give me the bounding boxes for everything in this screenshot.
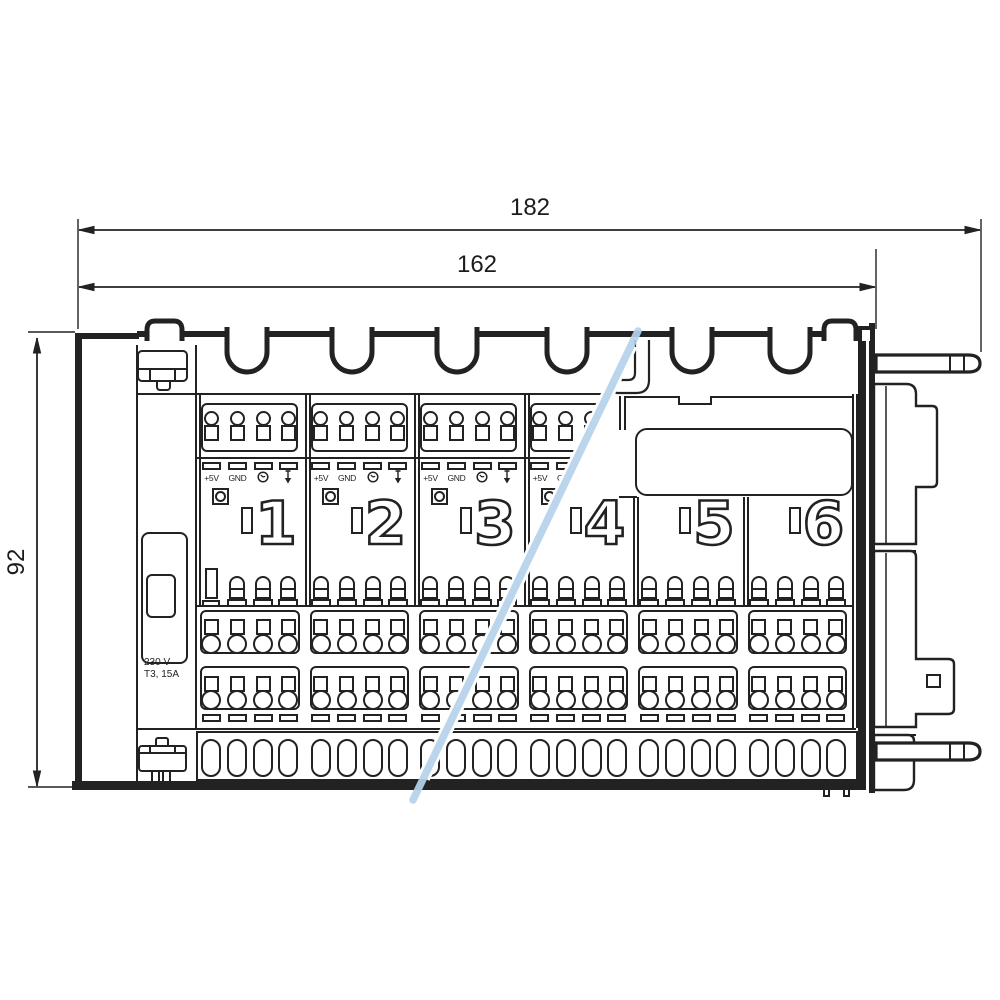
- pin-line: [231, 588, 243, 590]
- clock-icon: [367, 471, 379, 483]
- vent-slot: [421, 462, 440, 470]
- pin-line: [586, 588, 598, 590]
- terminal-clamp: [313, 425, 328, 441]
- drive-pin: [339, 576, 355, 599]
- screw-terminal-circle: [607, 690, 627, 710]
- pin-line: [424, 588, 436, 590]
- pin-line: [611, 588, 623, 590]
- screw-terminal-square: [204, 619, 219, 635]
- pin-base: [497, 599, 517, 607]
- drive-pin: [255, 576, 271, 599]
- module-top-detail: +5VGND: [195, 394, 305, 497]
- pin-line: [534, 588, 546, 590]
- cable-entry: [472, 739, 492, 777]
- screw-terminal-square: [609, 619, 624, 635]
- terminal-screw: [475, 411, 490, 426]
- screw-terminal-square: [500, 619, 515, 635]
- vent-slot-lower: [775, 714, 794, 722]
- screw-terminal-square: [694, 619, 709, 635]
- screw-terminal-circle: [775, 634, 795, 654]
- pin-base: [446, 599, 466, 607]
- terminal-screw: [339, 411, 354, 426]
- terminal-clamp: [475, 425, 490, 441]
- zone-number: 1: [251, 496, 301, 553]
- drive-pin: [777, 576, 793, 599]
- screw-terminal-circle: [388, 634, 408, 654]
- module-top-detail: +5VGND: [414, 394, 524, 497]
- cable-entry: [582, 739, 602, 777]
- cable-entry: [530, 739, 550, 777]
- drive-pin: [558, 576, 574, 599]
- pin-line: [476, 588, 488, 590]
- dimension-total-width: 182: [455, 195, 605, 221]
- vent-slot-lower: [607, 714, 626, 722]
- screw-terminal-circle: [556, 690, 576, 710]
- screw-terminal-circle: [801, 634, 821, 654]
- screw-terminal-circle: [311, 634, 331, 654]
- drive-pin: [584, 576, 600, 599]
- vent-slot: [498, 462, 517, 470]
- terminal-clamp: [584, 425, 599, 441]
- pin-line: [367, 588, 379, 590]
- zone-number: 2: [361, 496, 411, 553]
- drive-pin: [532, 576, 548, 599]
- vent-slot-lower: [228, 714, 247, 722]
- screw-terminal-circle: [253, 690, 273, 710]
- test-button: [322, 488, 339, 505]
- label-plus5v: +5V: [308, 473, 335, 483]
- screw-terminal-circle: [253, 634, 273, 654]
- vent-slot-lower: [666, 714, 685, 722]
- label-gnd: GND: [334, 473, 361, 483]
- terminal-clamp: [230, 425, 245, 441]
- terminal-clamp: [256, 425, 271, 441]
- cable-entry: [363, 739, 383, 777]
- screw-terminal-circle: [749, 690, 769, 710]
- pin-line: [315, 588, 327, 590]
- pin-line: [501, 588, 513, 590]
- screw-terminal-square: [668, 619, 683, 635]
- pin-line: [392, 588, 404, 590]
- screw-terminal-circle: [826, 634, 846, 654]
- screw-terminal-circle: [201, 634, 221, 654]
- down-arrow-icon: [283, 470, 293, 484]
- screw-terminal-circle: [775, 690, 795, 710]
- screw-terminal-circle: [582, 634, 602, 654]
- drive-pin: [474, 576, 490, 599]
- cable-entry: [556, 739, 576, 777]
- test-button: [431, 488, 448, 505]
- screw-terminal-circle: [826, 690, 846, 710]
- screw-terminal-square: [751, 619, 766, 635]
- cable-entry: [801, 739, 821, 777]
- terminal-clamp: [423, 425, 438, 441]
- vent-slot: [388, 462, 407, 470]
- vent-slot-lower: [254, 714, 273, 722]
- cable-entry: [337, 739, 357, 777]
- screw-terminal-circle: [363, 634, 383, 654]
- cable-entry: [201, 739, 221, 777]
- pin-base: [472, 599, 492, 607]
- terminal-clamp: [365, 425, 380, 441]
- pin-base: [665, 599, 685, 607]
- zone-number: 4: [580, 496, 630, 553]
- screw-terminal-circle: [472, 634, 492, 654]
- vent-slot: [447, 462, 466, 470]
- test-button-cap: [434, 491, 445, 502]
- module-divider: [633, 497, 635, 606]
- screw-terminal-circle: [446, 690, 466, 710]
- pin-base: [227, 599, 247, 607]
- vent-slot-lower: [692, 714, 711, 722]
- terminal-clamp: [390, 425, 405, 441]
- drive-pin: [365, 576, 381, 599]
- screw-terminal-square: [532, 619, 547, 635]
- screw-terminal-square: [365, 619, 380, 635]
- module-3: +5VGND3: [414, 0, 524, 1000]
- screw-terminal-square: [777, 619, 792, 635]
- pin-line: [695, 588, 707, 590]
- dimension-rail-width: 162: [402, 252, 552, 278]
- vent-slot-lower: [826, 714, 845, 722]
- vent-slot-lower: [801, 714, 820, 722]
- terminal-clamp: [281, 425, 296, 441]
- terminal-screw: [558, 411, 573, 426]
- test-button: [212, 488, 229, 505]
- pin-line: [720, 588, 732, 590]
- module-divider: [637, 497, 639, 606]
- pin-line: [753, 588, 765, 590]
- vent-slot: [254, 462, 273, 470]
- terminal-clamp: [500, 425, 515, 441]
- terminal-screw: [256, 411, 271, 426]
- module-6: 6: [743, 0, 853, 1000]
- screw-terminal-square: [313, 619, 328, 635]
- drive-pin: [609, 576, 625, 599]
- module-top-detail: +5VGND: [524, 394, 634, 497]
- screw-terminal-circle: [582, 690, 602, 710]
- terminal-clamp: [558, 425, 573, 441]
- drive-pin: [499, 576, 515, 599]
- clock-icon: [586, 471, 598, 483]
- zone-number: 5: [689, 496, 739, 553]
- vent-slot-lower: [279, 714, 298, 722]
- down-arrow-icon: [502, 470, 512, 484]
- pin-base: [202, 600, 220, 607]
- label-gnd: GND: [443, 473, 470, 483]
- terminal-screw: [449, 411, 464, 426]
- vent-slot-lower: [363, 714, 382, 722]
- screw-terminal-circle: [497, 690, 517, 710]
- terminal-clamp: [204, 425, 219, 441]
- cable-entry: [775, 739, 795, 777]
- drive-pin: [803, 576, 819, 599]
- test-button-cap: [215, 491, 226, 502]
- label-plus5v: +5V: [417, 473, 444, 483]
- screw-terminal-circle: [607, 634, 627, 654]
- cable-entry: [388, 739, 408, 777]
- screw-terminal-circle: [530, 634, 550, 654]
- drive-pin: [667, 576, 683, 599]
- vent-slot: [473, 462, 492, 470]
- vent-slot-lower: [473, 714, 492, 722]
- vent-slot: [311, 462, 330, 470]
- clock-icon: [257, 471, 269, 483]
- drive-pin: [422, 576, 438, 599]
- pin-line: [560, 588, 572, 590]
- pin-base: [311, 599, 331, 607]
- pin-line: [669, 588, 681, 590]
- jumper-slot: [205, 568, 218, 599]
- drive-pin: [828, 576, 844, 599]
- vent-slot: [556, 462, 575, 470]
- cable-entry: [311, 739, 331, 777]
- cable-entry: [420, 739, 440, 777]
- screw-terminal-circle: [530, 690, 550, 710]
- screw-terminal-square: [642, 619, 657, 635]
- vent-slot-lower: [311, 714, 330, 722]
- cable-entry: [639, 739, 659, 777]
- vent-slot: [530, 462, 549, 470]
- cable-entry: [749, 739, 769, 777]
- module-divider: [747, 497, 749, 606]
- terminal-screw: [390, 411, 405, 426]
- screw-terminal-circle: [311, 690, 331, 710]
- drive-pin: [751, 576, 767, 599]
- terminal-screw: [281, 411, 296, 426]
- drive-pin: [280, 576, 296, 599]
- pin-base: [363, 599, 383, 607]
- screw-terminal-circle: [556, 634, 576, 654]
- terminal-clamp: [532, 425, 547, 441]
- label-gnd: GND: [224, 473, 251, 483]
- vent-slot-lower: [498, 714, 517, 722]
- module-1: +5VGND1: [195, 0, 305, 1000]
- vent-slot-lower: [749, 714, 768, 722]
- terminal-screw: [204, 411, 219, 426]
- screw-terminal-square: [449, 619, 464, 635]
- screw-terminal-circle: [497, 634, 517, 654]
- screw-terminal-circle: [446, 634, 466, 654]
- vent-slot: [279, 462, 298, 470]
- cable-entry: [716, 739, 736, 777]
- terminal-screw: [500, 411, 515, 426]
- screw-terminal-circle: [420, 690, 440, 710]
- pin-base: [607, 599, 627, 607]
- vent-slot-lower: [337, 714, 356, 722]
- screw-terminal-circle: [337, 690, 357, 710]
- pin-line: [341, 588, 353, 590]
- zone-number: 6: [799, 496, 849, 553]
- screw-terminal-circle: [716, 634, 736, 654]
- cable-entry: [227, 739, 247, 777]
- test-button-cap: [325, 491, 336, 502]
- vent-slot-lower: [530, 714, 549, 722]
- vent-slot-lower: [421, 714, 440, 722]
- screw-terminal-circle: [639, 690, 659, 710]
- pin-line: [805, 588, 817, 590]
- vent-slot-lower: [717, 714, 736, 722]
- pin-base: [582, 599, 602, 607]
- drive-pin: [390, 576, 406, 599]
- cable-entry: [253, 739, 273, 777]
- cable-entry: [278, 739, 298, 777]
- test-button-cap: [544, 491, 555, 502]
- terminal-screw: [230, 411, 245, 426]
- pin-line: [643, 588, 655, 590]
- drive-pin: [229, 576, 245, 599]
- vent-slot-lower: [582, 714, 601, 722]
- terminal-screw: [584, 411, 599, 426]
- screw-terminal-circle: [227, 634, 247, 654]
- label-plus5v: +5V: [527, 473, 554, 483]
- pin-line: [779, 588, 791, 590]
- terminal-clamp: [609, 425, 624, 441]
- pin-base: [556, 599, 576, 607]
- drive-pin: [718, 576, 734, 599]
- vent-slot-lower: [556, 714, 575, 722]
- screw-terminal-square: [558, 619, 573, 635]
- screw-terminal-circle: [363, 690, 383, 710]
- screw-terminal-square: [828, 619, 843, 635]
- test-button: [541, 488, 558, 505]
- screw-terminal-circle: [388, 690, 408, 710]
- pin-base: [530, 599, 550, 607]
- vent-slot-lower: [640, 714, 659, 722]
- vent-slot: [363, 462, 382, 470]
- screw-terminal-square: [339, 619, 354, 635]
- screw-terminal-square: [390, 619, 405, 635]
- module-area: +5VGND1+5VGND2+5VGND3+5VGND456: [0, 0, 1000, 1000]
- terminal-screw: [532, 411, 547, 426]
- vent-slot: [337, 462, 356, 470]
- cable-entry: [691, 739, 711, 777]
- screw-terminal-circle: [201, 690, 221, 710]
- screw-terminal-circle: [472, 690, 492, 710]
- drive-pin: [641, 576, 657, 599]
- screw-terminal-square: [719, 619, 734, 635]
- pin-base: [278, 599, 298, 607]
- vent-slot: [202, 462, 221, 470]
- drive-pin: [693, 576, 709, 599]
- cable-entry: [607, 739, 627, 777]
- dimension-height: 92: [4, 517, 30, 607]
- screw-terminal-circle: [716, 690, 736, 710]
- screw-terminal-circle: [691, 690, 711, 710]
- screw-terminal-circle: [665, 634, 685, 654]
- vent-slot-lower: [388, 714, 407, 722]
- screw-terminal-circle: [278, 634, 298, 654]
- cable-entry: [826, 739, 846, 777]
- vent-slot: [582, 462, 601, 470]
- pin-base: [691, 599, 711, 607]
- pin-base: [775, 599, 795, 607]
- pin-line: [450, 588, 462, 590]
- pin-base: [749, 599, 769, 607]
- vent-slot: [607, 462, 626, 470]
- screw-terminal-square: [475, 619, 490, 635]
- screw-terminal-circle: [420, 634, 440, 654]
- terminal-clamp: [449, 425, 464, 441]
- screw-terminal-circle: [749, 634, 769, 654]
- module-5: 5: [633, 0, 743, 1000]
- pin-base: [388, 599, 408, 607]
- module-4: +5VGND4: [524, 0, 634, 1000]
- screw-terminal-circle: [801, 690, 821, 710]
- pin-base: [420, 599, 440, 607]
- cable-entry: [497, 739, 517, 777]
- pin-base: [253, 599, 273, 607]
- screw-terminal-circle: [278, 690, 298, 710]
- pin-base: [826, 599, 846, 607]
- dimension-drawing: 230 V T3, 15A +5VGND1+5VGND2+5VGND3+5VGN…: [0, 0, 1000, 1000]
- drive-pin: [448, 576, 464, 599]
- label-plus5v: +5V: [198, 473, 225, 483]
- terminal-screw: [365, 411, 380, 426]
- vent-slot-lower: [447, 714, 466, 722]
- screw-terminal-circle: [665, 690, 685, 710]
- screw-terminal-circle: [639, 634, 659, 654]
- screw-terminal-circle: [337, 634, 357, 654]
- screw-terminal-circle: [227, 690, 247, 710]
- module-top-detail: +5VGND: [305, 394, 415, 497]
- clock-icon: [476, 471, 488, 483]
- label-gnd: GND: [553, 473, 580, 483]
- cable-entry: [665, 739, 685, 777]
- cable-entry: [446, 739, 466, 777]
- screw-terminal-square: [423, 619, 438, 635]
- drive-pin: [313, 576, 329, 599]
- screw-terminal-square: [256, 619, 271, 635]
- screw-terminal-square: [803, 619, 818, 635]
- pin-base: [801, 599, 821, 607]
- terminal-screw: [609, 411, 624, 426]
- pin-base: [639, 599, 659, 607]
- vent-slot: [228, 462, 247, 470]
- pin-base: [716, 599, 736, 607]
- pin-base: [337, 599, 357, 607]
- terminal-clamp: [339, 425, 354, 441]
- screw-terminal-square: [230, 619, 245, 635]
- screw-terminal-square: [281, 619, 296, 635]
- module-divider: [743, 497, 745, 606]
- down-arrow-icon: [612, 470, 622, 484]
- screw-terminal-circle: [691, 634, 711, 654]
- down-arrow-icon: [393, 470, 403, 484]
- module-2: +5VGND2: [305, 0, 415, 1000]
- terminal-screw: [423, 411, 438, 426]
- zone-number: 3: [470, 496, 520, 553]
- pin-line: [830, 588, 842, 590]
- pin-line: [282, 588, 294, 590]
- screw-terminal-square: [584, 619, 599, 635]
- terminal-screw: [313, 411, 328, 426]
- pin-line: [257, 588, 269, 590]
- vent-slot-lower: [202, 714, 221, 722]
